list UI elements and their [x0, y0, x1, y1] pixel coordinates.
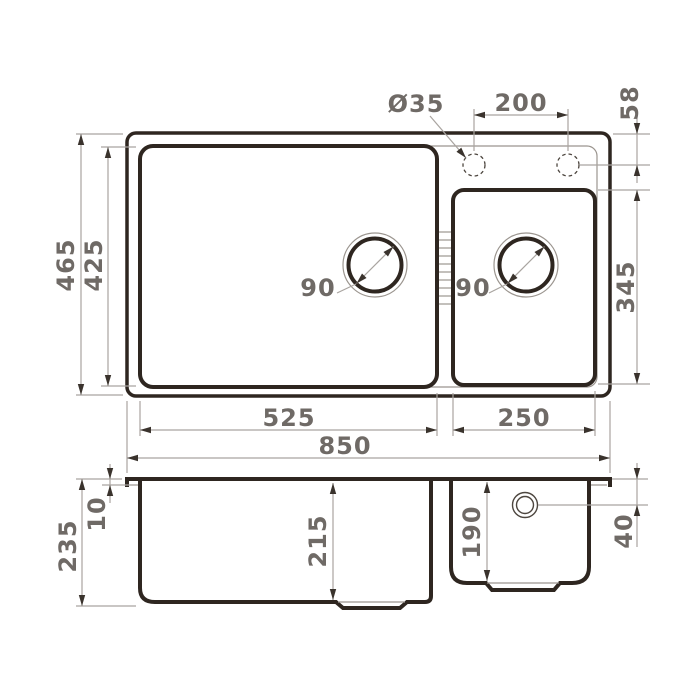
dim-label-rim-thickness: 10: [83, 496, 111, 531]
dim-label-faucet-hole-spacing: 200: [494, 89, 547, 117]
dim-faucet-hole-spacing: 200: [474, 89, 568, 151]
left-bowl-profile: [140, 481, 431, 608]
technical-drawing-page: 90 90 465 425 Ø35: [0, 0, 700, 700]
divider-hatch: [439, 232, 451, 304]
left-drain-diameter-arrow: [357, 247, 394, 284]
dim-label-left-bowl-depth: 215: [304, 514, 332, 567]
top-view: 90 90 465 425 Ø35: [52, 85, 650, 473]
right-drain: 90: [455, 233, 558, 302]
dim-overflow-top-offset: 40: [610, 463, 648, 549]
dim-right-drain-diameter: 90: [455, 274, 490, 302]
dim-rim-thickness: 10: [83, 464, 137, 532]
overflow-hole-inner: [517, 497, 534, 514]
dim-left-bowl-depth: 215: [304, 483, 333, 600]
side-view: 235 10 215 190 40: [54, 463, 648, 608]
dim-left-drain-diameter: 90: [300, 274, 335, 302]
dim-label-inner-depth: 425: [80, 238, 108, 291]
dim-label-overflow-top-offset: 40: [610, 513, 638, 548]
dim-left-bowl-width: 525: [140, 393, 437, 436]
dim-label-right-bowl-width: 250: [497, 404, 550, 432]
dim-label-right-bowl-inner-depth: 190: [458, 505, 486, 558]
sink-outer-edge: [127, 133, 610, 396]
dim-right-bowl-inner-depth: 190: [458, 482, 487, 581]
dim-right-bowl-depth: 345: [598, 190, 650, 384]
dim-label-overall-depth: 465: [52, 238, 80, 291]
left-drain: 90: [300, 233, 407, 302]
dim-label-faucet-hole-top-offset: 58: [616, 85, 644, 120]
dim-label-overall-width: 850: [318, 432, 371, 460]
sink-rim-inner-edge: [140, 146, 597, 387]
left-bowl: [140, 146, 437, 387]
dim-label-left-bowl-width: 525: [262, 404, 315, 432]
dim-label-faucet-hole-diameter: Ø35: [388, 90, 445, 118]
dim-label-right-bowl-depth: 345: [612, 260, 640, 313]
sink-dimension-drawing: 90 90 465 425 Ø35: [0, 0, 700, 700]
right-drain-diameter-arrow: [508, 247, 545, 284]
faucet-hole-left: [463, 154, 485, 176]
countertop-line: [127, 479, 610, 487]
faucet-hole-right: [557, 154, 579, 176]
dim-label-overall-height: 235: [54, 519, 82, 572]
